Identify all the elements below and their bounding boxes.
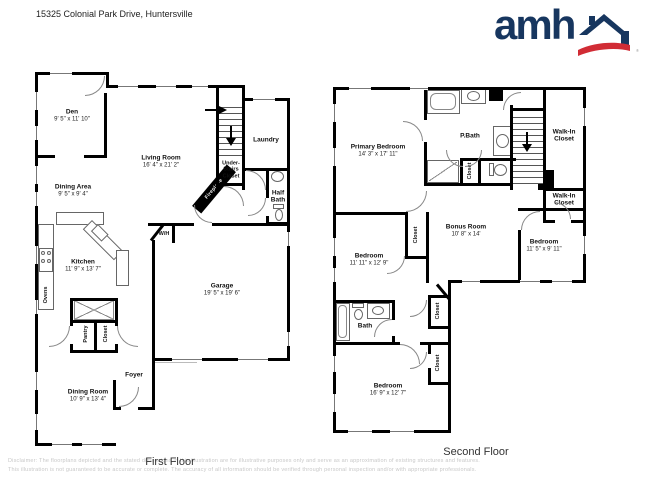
sink-icon	[372, 306, 384, 315]
wall	[428, 344, 431, 354]
room-label-bedroom-left: Bedroom 11' 11" x 12' 9"	[350, 252, 389, 267]
window	[333, 394, 336, 412]
wall	[543, 87, 546, 175]
window	[583, 236, 586, 254]
wall	[518, 208, 586, 211]
wall	[478, 158, 481, 186]
toilet-bowl-icon	[354, 309, 363, 320]
door-arc	[410, 352, 427, 369]
window	[333, 104, 336, 122]
door-arc	[521, 211, 540, 230]
window	[333, 148, 336, 166]
window	[349, 87, 371, 90]
wall	[420, 342, 448, 345]
window	[333, 268, 336, 282]
shower-icon	[429, 162, 457, 181]
disclaimer-line-1: Disclaimer: The floorplans depicted and …	[8, 458, 480, 464]
second-floor-title: Second Floor	[443, 446, 508, 458]
wall	[405, 256, 428, 259]
room-label-primary-bedroom: Primary Bedroom 14' 3" x 17' 11"	[351, 143, 406, 158]
door-arc	[374, 319, 392, 337]
disclaimer-line-2: This illustration is not guaranteed to b…	[8, 467, 476, 473]
toilet-tank-icon	[352, 303, 364, 308]
room-label-pbath: P.Bath	[460, 132, 480, 139]
page: 15325 Colonial Park Drive, Huntersville …	[0, 0, 650, 488]
wall	[333, 87, 336, 433]
sink-icon	[496, 134, 509, 148]
window	[583, 108, 586, 126]
room-label-closet-hall: Closet	[413, 227, 419, 244]
wall	[428, 382, 448, 385]
sink-icon	[467, 91, 480, 101]
window	[333, 238, 336, 256]
wall	[571, 220, 586, 223]
door-arc	[503, 92, 521, 110]
bathtub-icon	[430, 93, 456, 110]
wall	[333, 300, 395, 303]
room-label-bedroom-bottom: Bedroom 16' 9" x 12' 7"	[370, 382, 406, 397]
window	[462, 280, 480, 283]
window	[552, 280, 572, 283]
window	[348, 430, 372, 433]
wall	[428, 295, 448, 298]
wall	[428, 295, 431, 328]
wall	[405, 212, 408, 258]
wall	[543, 220, 555, 223]
door-arc	[406, 191, 427, 212]
window	[390, 430, 414, 433]
toilet-bowl-icon	[494, 164, 507, 176]
wall	[518, 230, 521, 283]
wall	[424, 142, 427, 186]
room-label-walk-in-closet-1: Walk-In Closet	[548, 129, 580, 144]
door-arc	[387, 256, 405, 274]
door-arc	[410, 300, 427, 317]
window	[333, 356, 336, 372]
wall	[543, 188, 546, 223]
door-arc	[403, 121, 423, 141]
wall	[448, 283, 451, 433]
wall	[333, 342, 400, 345]
wall	[428, 326, 448, 329]
wall	[424, 87, 427, 120]
wall	[426, 212, 429, 283]
window	[410, 87, 428, 90]
room-label-closet-upper: Closet	[435, 303, 441, 320]
room-label-bonus-room: Bonus Room 10' 8" x 14'	[446, 223, 486, 238]
room-label-bath: Bath	[358, 322, 372, 329]
room-label-closet-lower: Closet	[435, 355, 441, 372]
second-floor-plan: Primary Bedroom 14' 3" x 17' 11" P.Bath …	[0, 0, 650, 488]
wall	[510, 105, 513, 190]
wall	[543, 188, 586, 191]
window	[520, 280, 540, 283]
bathtub-icon	[338, 305, 347, 338]
room-label-bedroom-right: Bedroom 11' 5" x 9' 11"	[526, 238, 561, 253]
wall	[392, 300, 395, 320]
stairs-down-arrow-icon	[522, 144, 532, 152]
first-floor-title: First Floor	[145, 456, 195, 468]
wall	[424, 183, 513, 186]
wall	[333, 212, 407, 215]
